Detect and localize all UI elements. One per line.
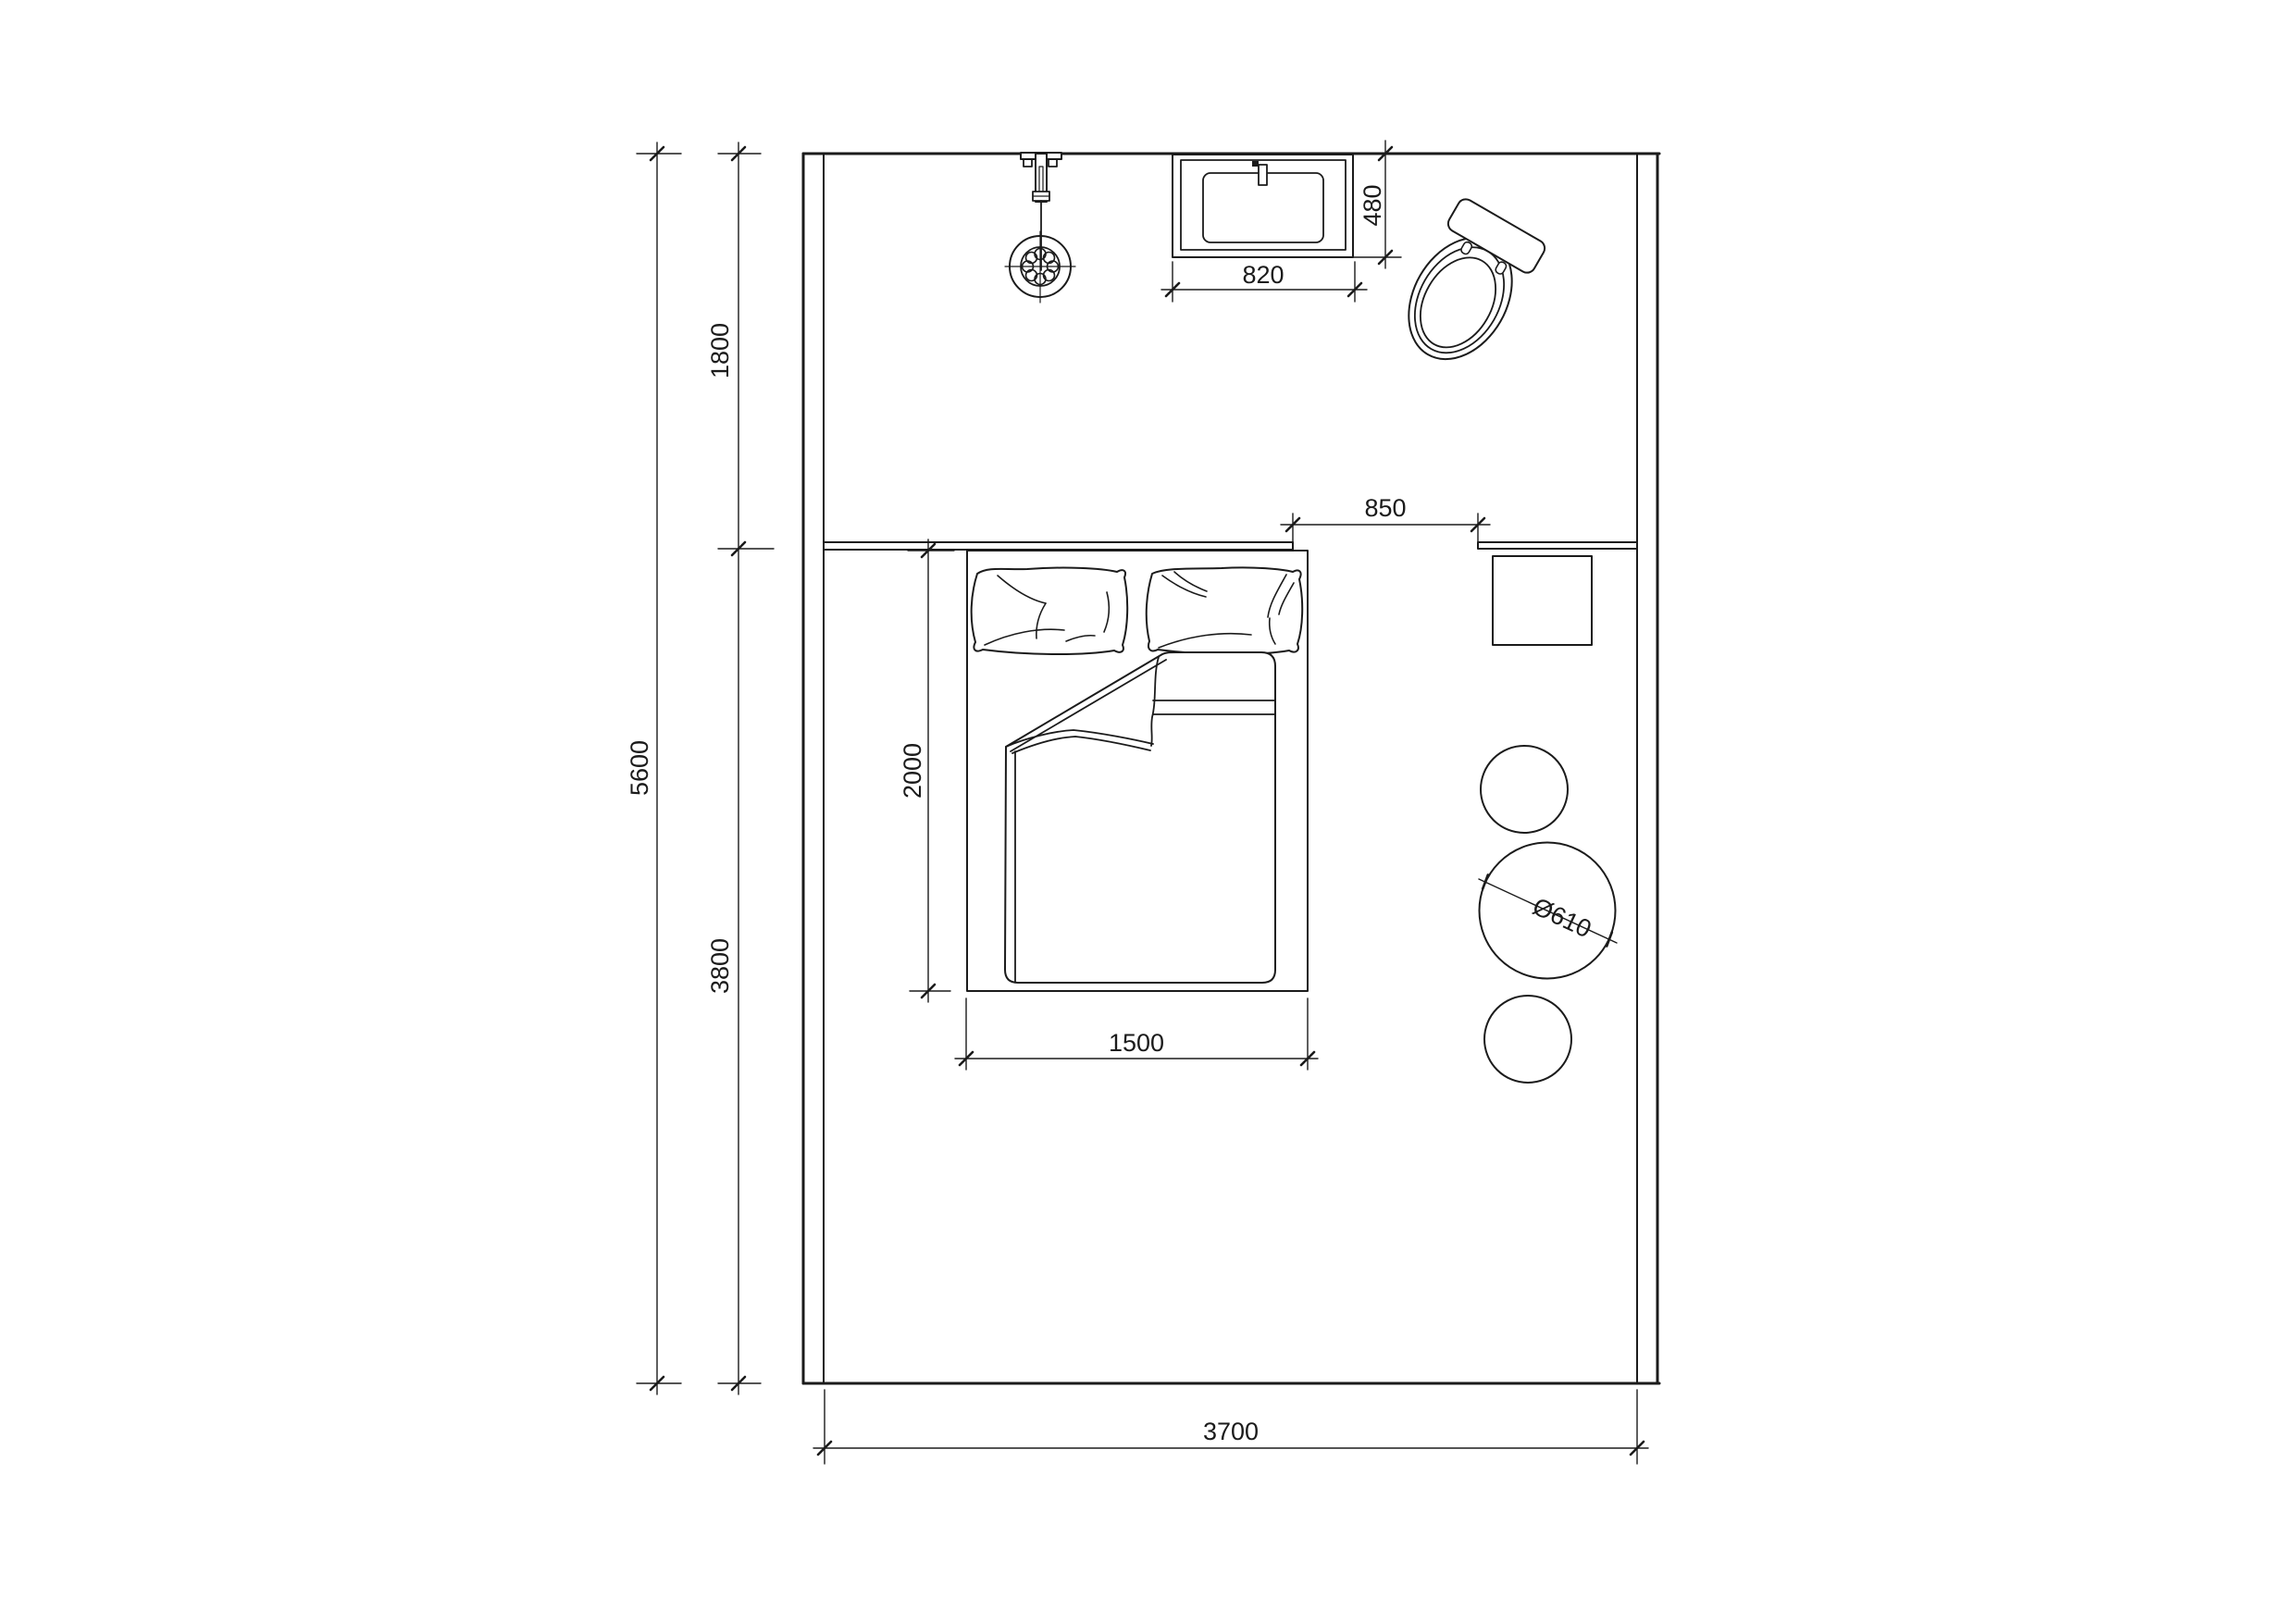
vanity-basin [1173,155,1353,257]
blanket-outline [1005,652,1275,983]
dim-text-room-height: 5600 [626,740,653,796]
dim-text-vanity-width: 820 [1242,261,1284,289]
dim-text-bed-width: 1500 [1109,1029,1164,1057]
faucet [1259,165,1267,185]
pillow-right [1147,567,1302,654]
toilet [1385,196,1547,379]
floor-plan-page: 5600 1800 3800 3700 2000 1500 850 820 48… [0,0,2296,1623]
seat-hinge-right [1495,261,1508,276]
faucet-handle [1252,161,1259,167]
bracket-tab-left [1024,159,1032,167]
dim-text-room-width: 3700 [1203,1418,1259,1445]
dim-text-upper-zone: 1800 [706,323,734,378]
plan-root: 5600 1800 3800 3700 2000 1500 850 820 48… [626,141,1659,1464]
dim-text-bed-length: 2000 [899,743,926,799]
toilet-bowl-inner [1405,244,1510,361]
headboard-ledge [824,542,1293,550]
dim-text-bed-side-gap: 850 [1364,494,1406,522]
bracket-tab-right [1049,159,1057,167]
desk-shelf [1478,542,1637,549]
shower-fixture [1005,153,1075,303]
blanket [1005,652,1275,983]
seat-hinge-left [1459,241,1472,255]
pillow-left [972,568,1128,654]
toilet-tank [1446,196,1548,276]
dim-text-vanity-depth: 480 [1359,184,1386,226]
nightstand [1493,556,1592,645]
dim-text-stool-diameter: Ø610 [1529,892,1596,943]
stool-small-top [1481,746,1568,833]
stool-small-bottom [1484,996,1571,1083]
double-bed [967,551,1308,991]
dim-text-lower-zone: 3800 [706,938,734,994]
floor-plan-canvas: 5600 1800 3800 3700 2000 1500 850 820 48… [0,0,2296,1623]
